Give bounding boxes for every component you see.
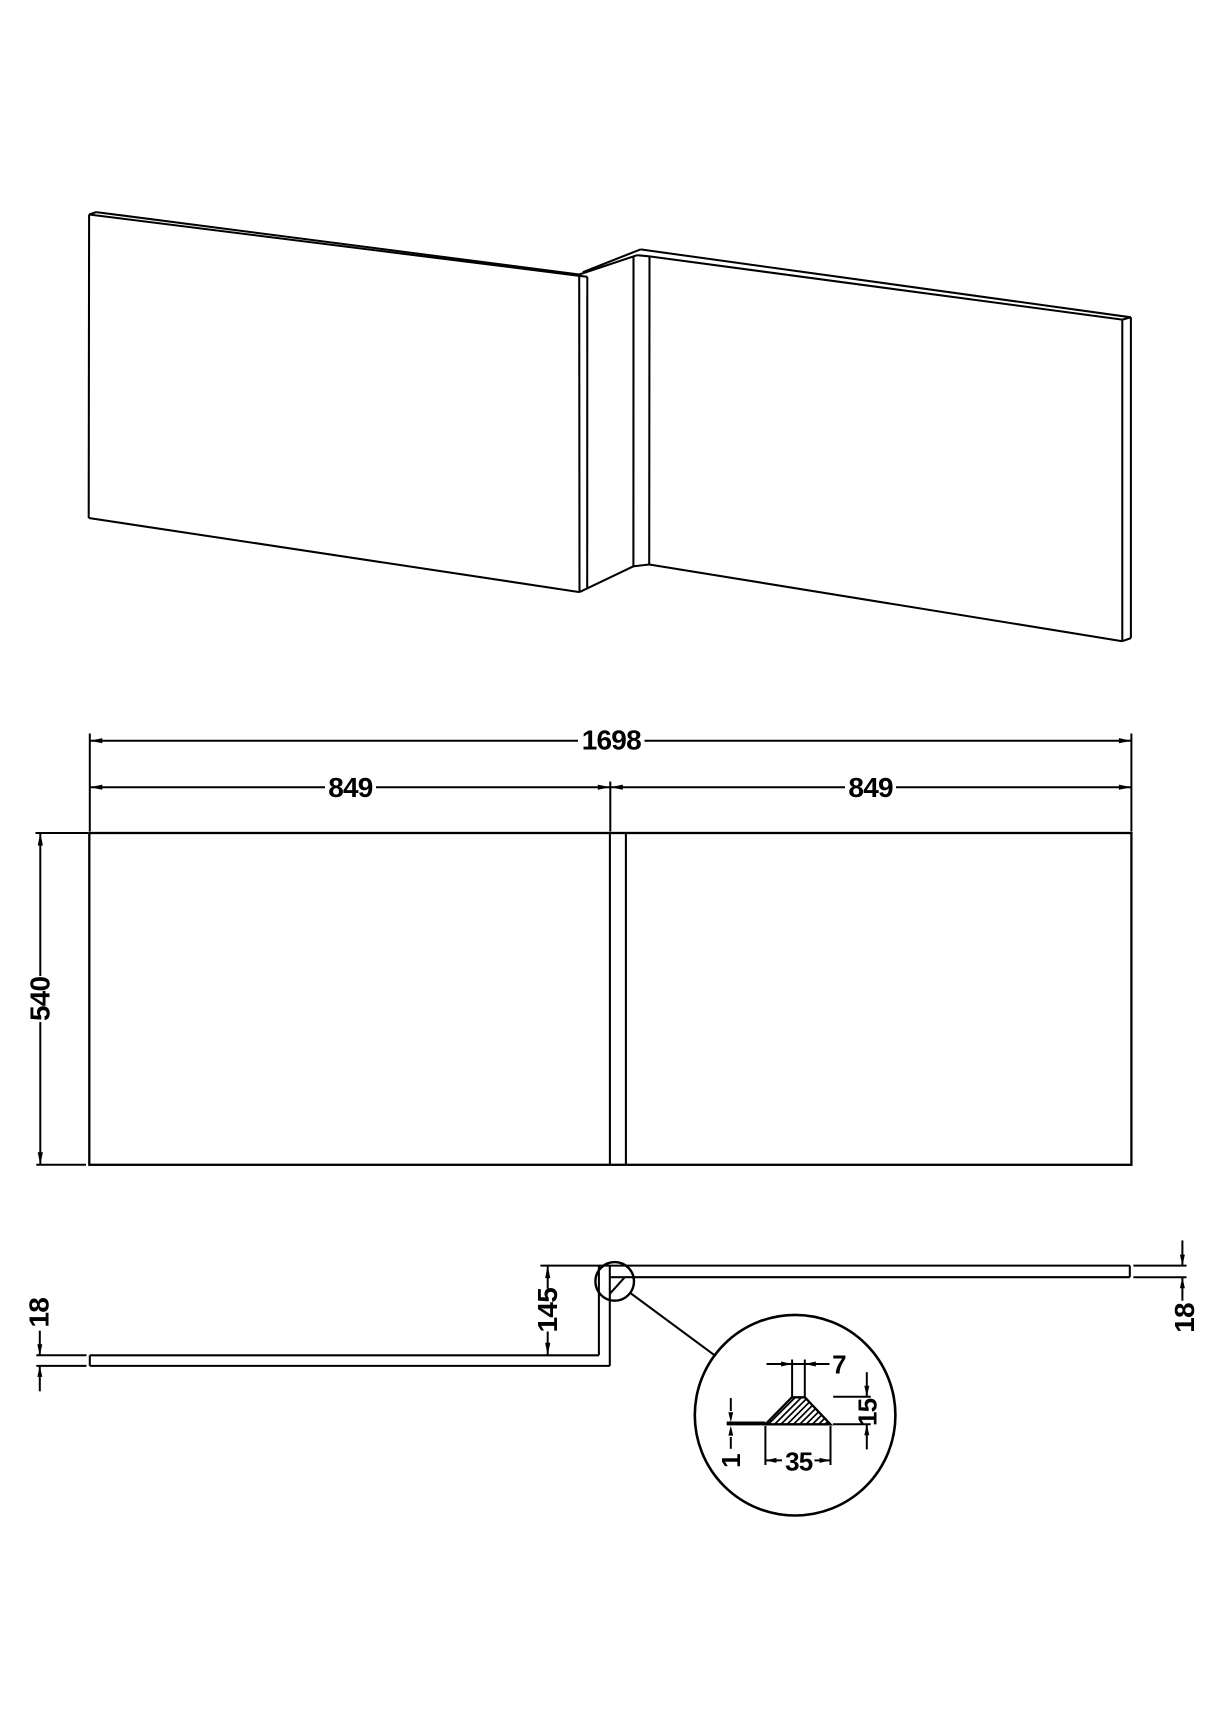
svg-text:145: 145 xyxy=(532,1288,563,1333)
svg-text:7: 7 xyxy=(832,1349,846,1379)
svg-text:1: 1 xyxy=(716,1454,746,1468)
svg-text:15: 15 xyxy=(853,1398,883,1426)
svg-text:849: 849 xyxy=(328,772,373,803)
svg-text:1698: 1698 xyxy=(582,725,641,756)
svg-text:18: 18 xyxy=(1169,1303,1200,1333)
svg-text:849: 849 xyxy=(848,772,893,803)
svg-text:540: 540 xyxy=(25,977,56,1022)
svg-text:18: 18 xyxy=(23,1298,54,1328)
svg-text:35: 35 xyxy=(785,1446,813,1476)
